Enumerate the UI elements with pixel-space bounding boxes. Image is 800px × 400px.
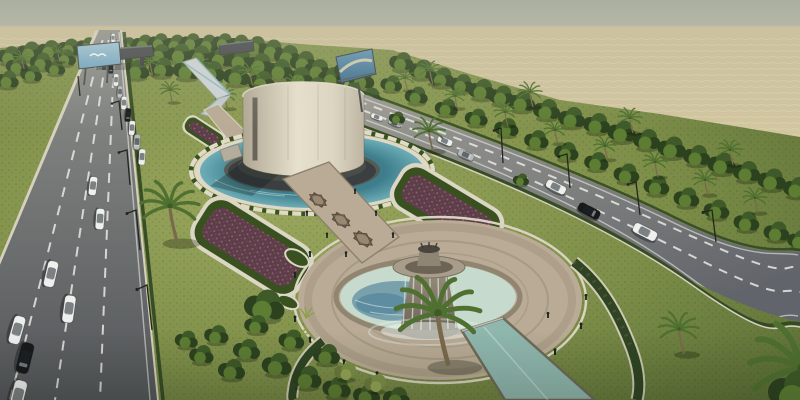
rendered-scene: Aerial 3D rendering of a landscaped boul… — [0, 0, 800, 400]
foreground-vignette — [0, 330, 800, 400]
distance-haze — [0, 0, 800, 130]
scene-canvas: Aerial 3D rendering of a landscaped boul… — [0, 0, 800, 400]
